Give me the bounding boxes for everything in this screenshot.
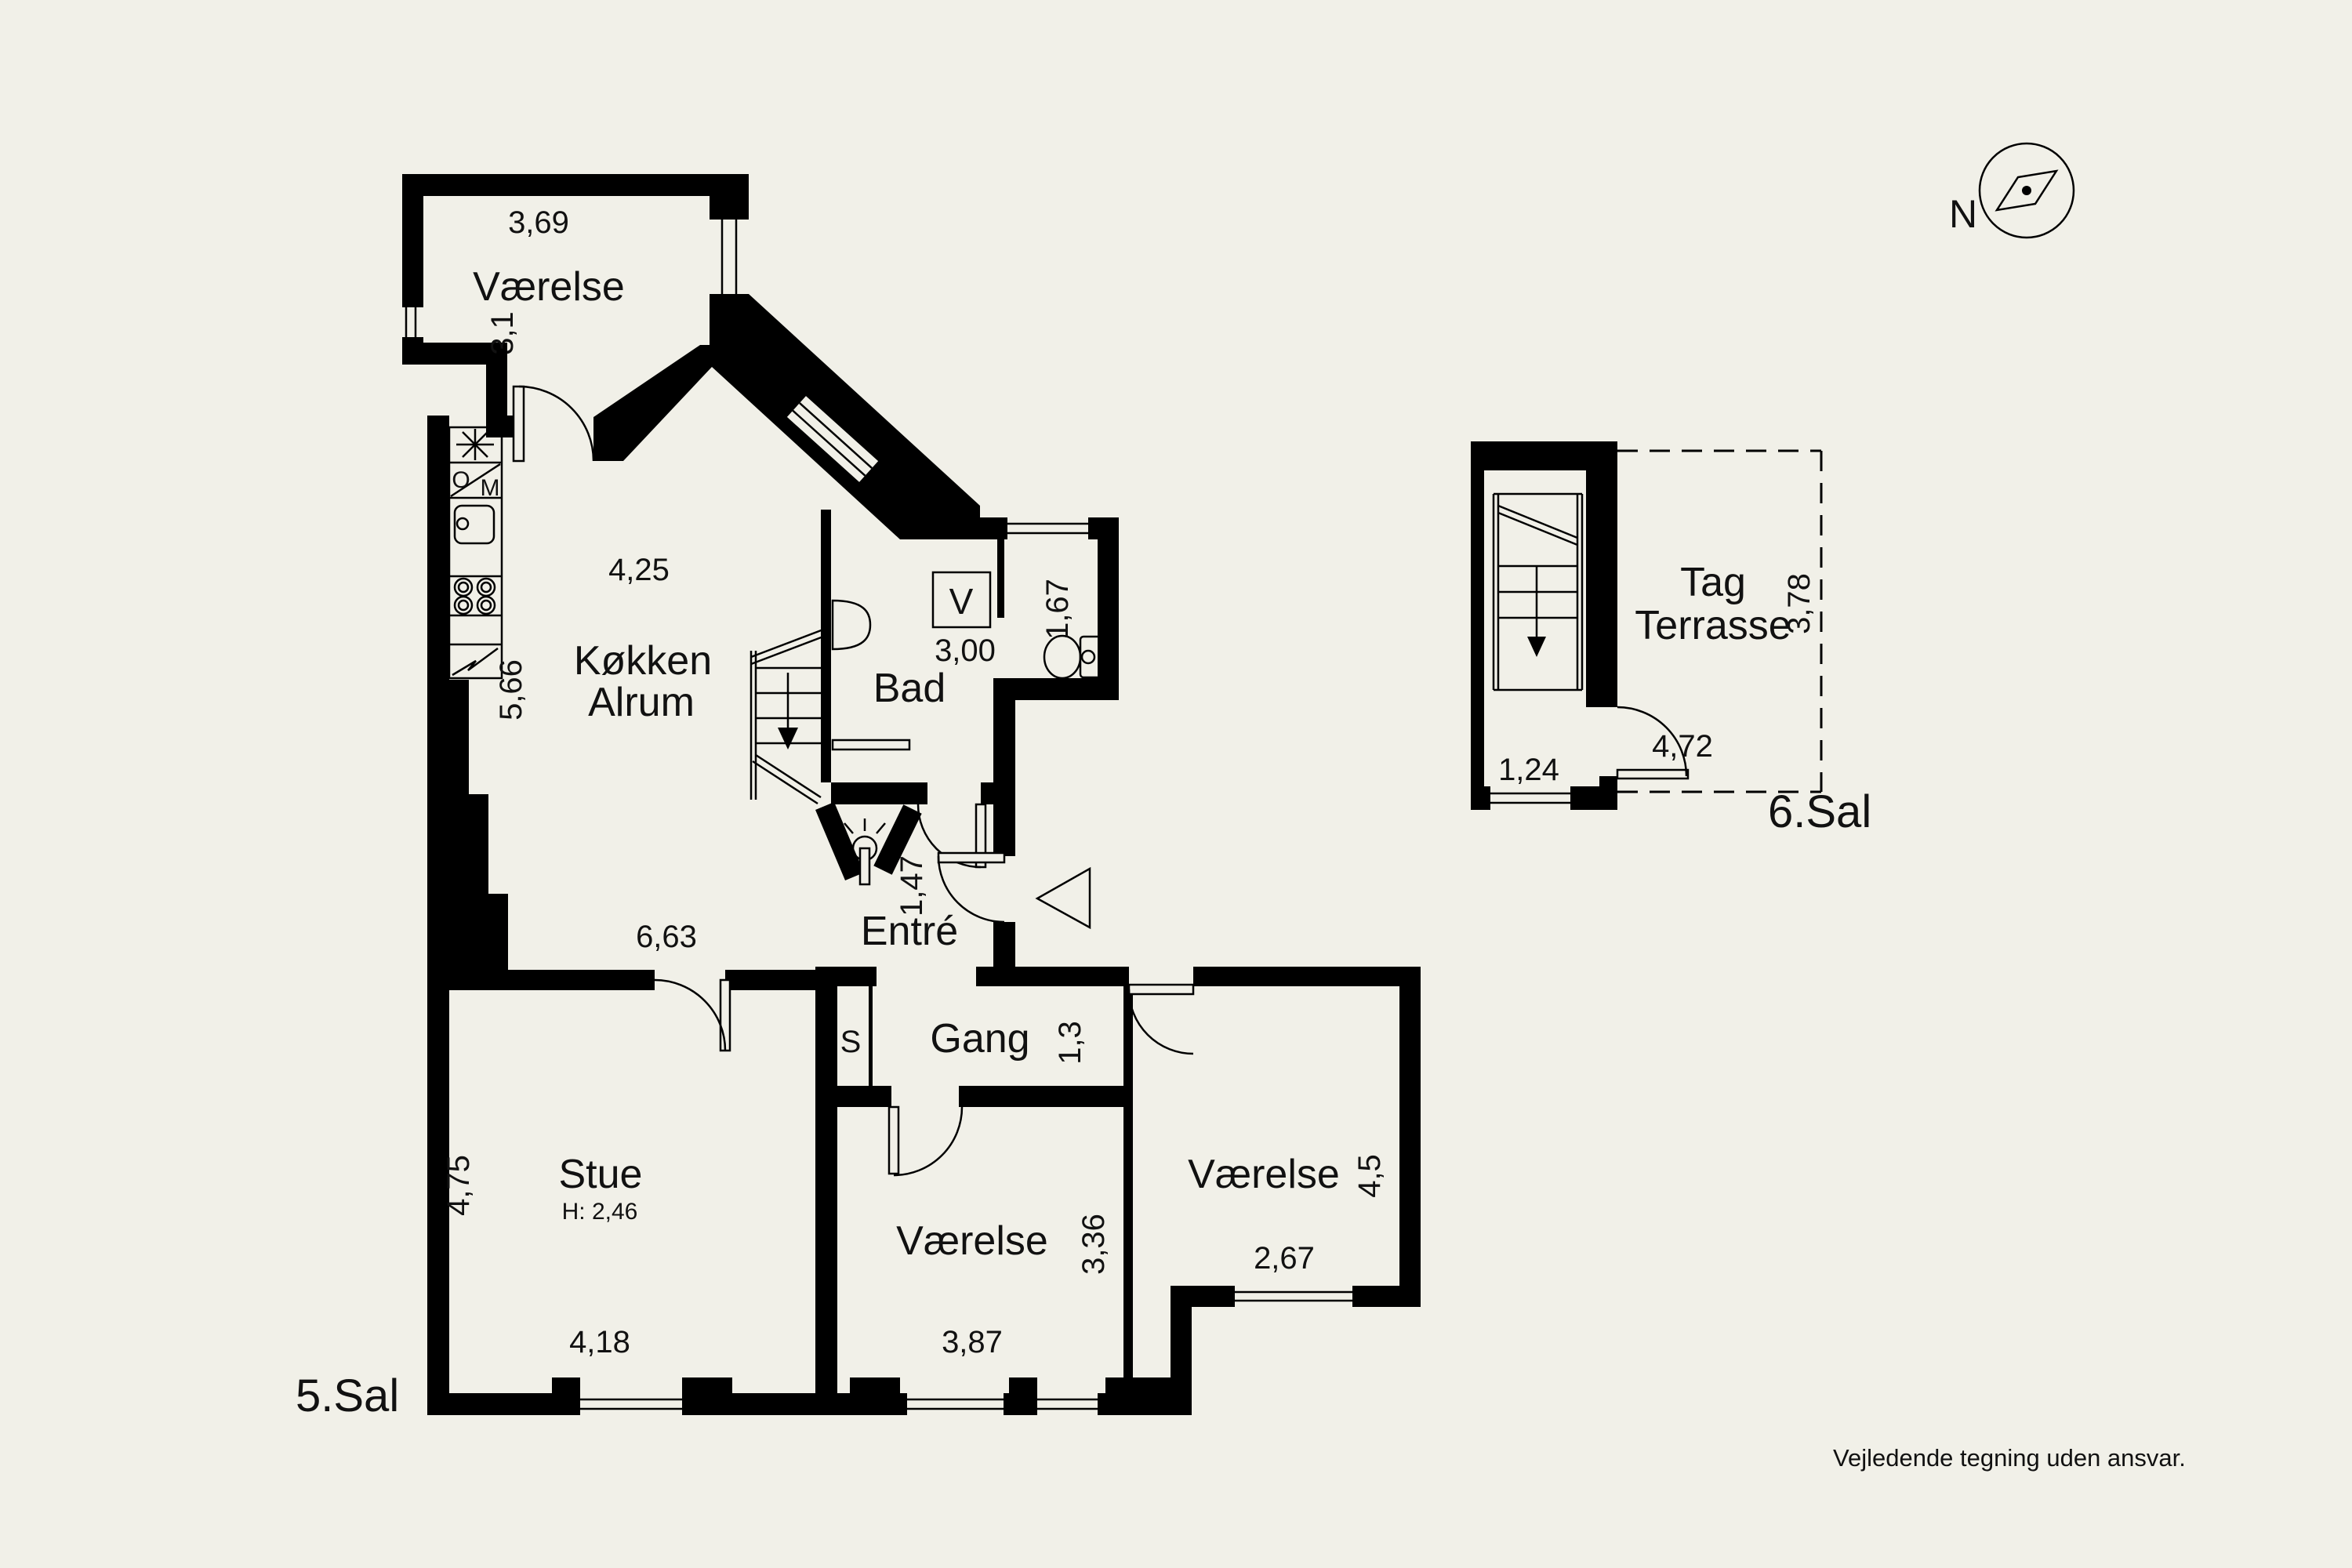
label-terrace-line1: Tag bbox=[1680, 560, 1746, 605]
oven-micro-icon: O M bbox=[451, 464, 500, 501]
floor5-label: 5.Sal bbox=[296, 1370, 399, 1421]
washer-letter: V bbox=[949, 581, 974, 622]
label-terrace-line2: Terrasse bbox=[1635, 603, 1791, 648]
stairs-icon bbox=[751, 630, 823, 804]
door-stue-icon bbox=[655, 980, 730, 1051]
door-mid-room-icon bbox=[889, 1107, 962, 1175]
dim-east-room-depth: 4,5 bbox=[1352, 1154, 1387, 1198]
floor6-window bbox=[1490, 786, 1570, 810]
window-wc-icon bbox=[1007, 517, 1088, 539]
towel-rail-icon bbox=[833, 740, 909, 750]
dim-living-width: 4,18 bbox=[569, 1325, 630, 1359]
dim-stair-width: 1,24 bbox=[1498, 753, 1559, 787]
label-entry: Entré bbox=[861, 909, 958, 954]
cooktop-icon bbox=[455, 579, 495, 614]
dim-kitchen-width: 4,25 bbox=[608, 553, 670, 587]
dim-north-room-width: 3,69 bbox=[508, 205, 569, 240]
label-kitchen-line1: Køkken bbox=[574, 638, 712, 684]
kitchen-counter: O M bbox=[449, 427, 502, 678]
dim-hall-depth: 1,3 bbox=[1053, 1021, 1087, 1065]
window-mid-room-right-icon bbox=[1037, 1393, 1098, 1415]
dim-living-depth: 4,75 bbox=[441, 1155, 476, 1216]
dim-terrace-depth: 3,78 bbox=[1782, 573, 1817, 634]
label-bath: Bad bbox=[873, 666, 946, 711]
label-kitchen-line2: Alrum bbox=[588, 680, 695, 725]
window-north-room-left-icon bbox=[398, 307, 427, 337]
door-north-room-icon bbox=[514, 387, 593, 461]
floorplan-drawing: O M bbox=[0, 0, 2352, 1568]
dim-mid-room-depth: 3,36 bbox=[1076, 1214, 1111, 1275]
window-mid-room-left-icon bbox=[907, 1393, 1004, 1415]
label-mid-room: Værelse bbox=[896, 1218, 1048, 1264]
floor6-label: 6.Sal bbox=[1768, 786, 1871, 837]
label-closet: S bbox=[840, 1025, 862, 1059]
compass-icon: N bbox=[1949, 143, 2074, 238]
entrance-arrow-icon bbox=[1037, 869, 1090, 927]
label-living: Stue bbox=[559, 1152, 643, 1197]
dim-north-room-depth: 3,1 bbox=[485, 311, 520, 355]
toilet-icon bbox=[1044, 636, 1101, 678]
dim-mid-room-width: 3,87 bbox=[942, 1325, 1003, 1359]
window-north-room-right-icon bbox=[710, 220, 749, 294]
dim-entry-depth: 1,47 bbox=[895, 855, 929, 916]
washing-machine-box: V bbox=[933, 572, 990, 627]
floorplan-page: O M bbox=[0, 0, 2352, 1568]
dim-kitchen-lower-width: 6,63 bbox=[636, 920, 697, 954]
micro-letter: M bbox=[481, 475, 500, 501]
dim-kitchen-depth: 5,66 bbox=[494, 659, 528, 720]
dim-terrace-width: 4,72 bbox=[1652, 729, 1713, 764]
dishwasher-icon bbox=[452, 648, 498, 675]
stairs-6sal-icon bbox=[1494, 494, 1582, 690]
bath-sink-icon bbox=[833, 601, 870, 649]
dim-living-ceiling: H: 2,46 bbox=[562, 1199, 638, 1225]
label-east-room: Værelse bbox=[1188, 1152, 1340, 1197]
label-hall: Gang bbox=[930, 1016, 1029, 1062]
floor6-plan: Tag Terrasse 3,78 4,72 1,24 6.Sal bbox=[1471, 441, 1871, 837]
floor5-plan: O M bbox=[296, 174, 1421, 1421]
window-east-room-icon bbox=[1235, 1286, 1352, 1307]
oven-letter: O bbox=[452, 467, 470, 493]
dim-bath-width: 3,00 bbox=[935, 633, 996, 668]
floor5-windows bbox=[398, 220, 1352, 1415]
dim-east-room-width: 2,67 bbox=[1254, 1241, 1315, 1276]
compass-north-label: N bbox=[1949, 192, 1977, 236]
sink-icon bbox=[455, 506, 494, 543]
disclaimer-text: Vejledende tegning uden ansvar. bbox=[1833, 1444, 2186, 1472]
dim-wc-depth: 1,67 bbox=[1040, 579, 1075, 640]
label-north-room: Værelse bbox=[473, 264, 625, 310]
window-stue-icon bbox=[580, 1393, 682, 1415]
door-east-room-icon bbox=[1129, 985, 1193, 1054]
